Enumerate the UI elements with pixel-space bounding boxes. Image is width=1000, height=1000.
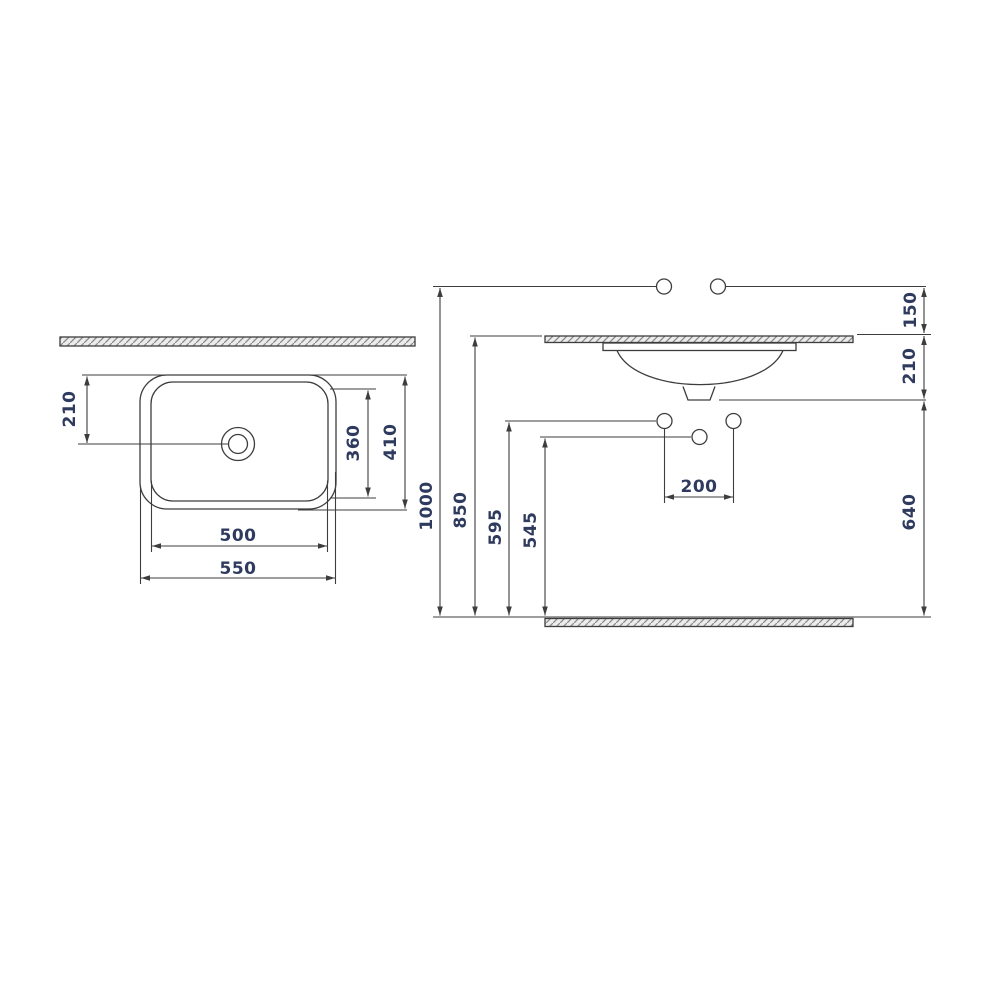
plan-dim-210-label: 210 (60, 391, 80, 428)
front-dim-640-label: 640 (900, 494, 920, 531)
front-dim-850-label: 850 (451, 492, 471, 529)
countertop-hatch-bar (545, 336, 853, 343)
front-dim-200-label: 200 (681, 477, 718, 497)
waste-hole (692, 430, 707, 445)
wall-hatch-bar (60, 337, 415, 346)
plan-dim-550-label: 550 (220, 559, 257, 579)
wall-supply-hole-left (657, 279, 672, 294)
basin-bowl-section (617, 351, 783, 385)
basin-inner-outline (151, 382, 328, 501)
plan-dim-500-label: 500 (220, 526, 257, 546)
supply-hole-left (657, 414, 672, 429)
wall-supply-hole-right (711, 279, 726, 294)
floor-hatch-bar (545, 619, 853, 627)
supply-hole-right (726, 414, 741, 429)
basin-rim-section (603, 343, 796, 351)
front-view: 200 1000 850 595 545 150 210 640 (417, 279, 931, 627)
front-dim-595-label: 595 (486, 509, 506, 546)
plan-view: 210 360 410 500 550 (60, 337, 415, 584)
plan-dim-410-label: 410 (381, 424, 401, 461)
front-dim-545-label: 545 (521, 512, 541, 549)
drain-hole-inner (229, 435, 248, 454)
front-dim-150-label: 150 (901, 292, 921, 329)
basin-technical-drawing: 210 360 410 500 550 200 (0, 0, 1000, 1000)
front-dim-1000-label: 1000 (417, 481, 437, 530)
front-dim-210-label: 210 (900, 348, 920, 385)
drain-outlet-section (683, 387, 715, 401)
plan-dim-360-label: 360 (344, 425, 364, 462)
technical-drawing-page: 210 360 410 500 550 200 (0, 0, 1000, 1000)
basin-outer-outline (140, 375, 336, 509)
